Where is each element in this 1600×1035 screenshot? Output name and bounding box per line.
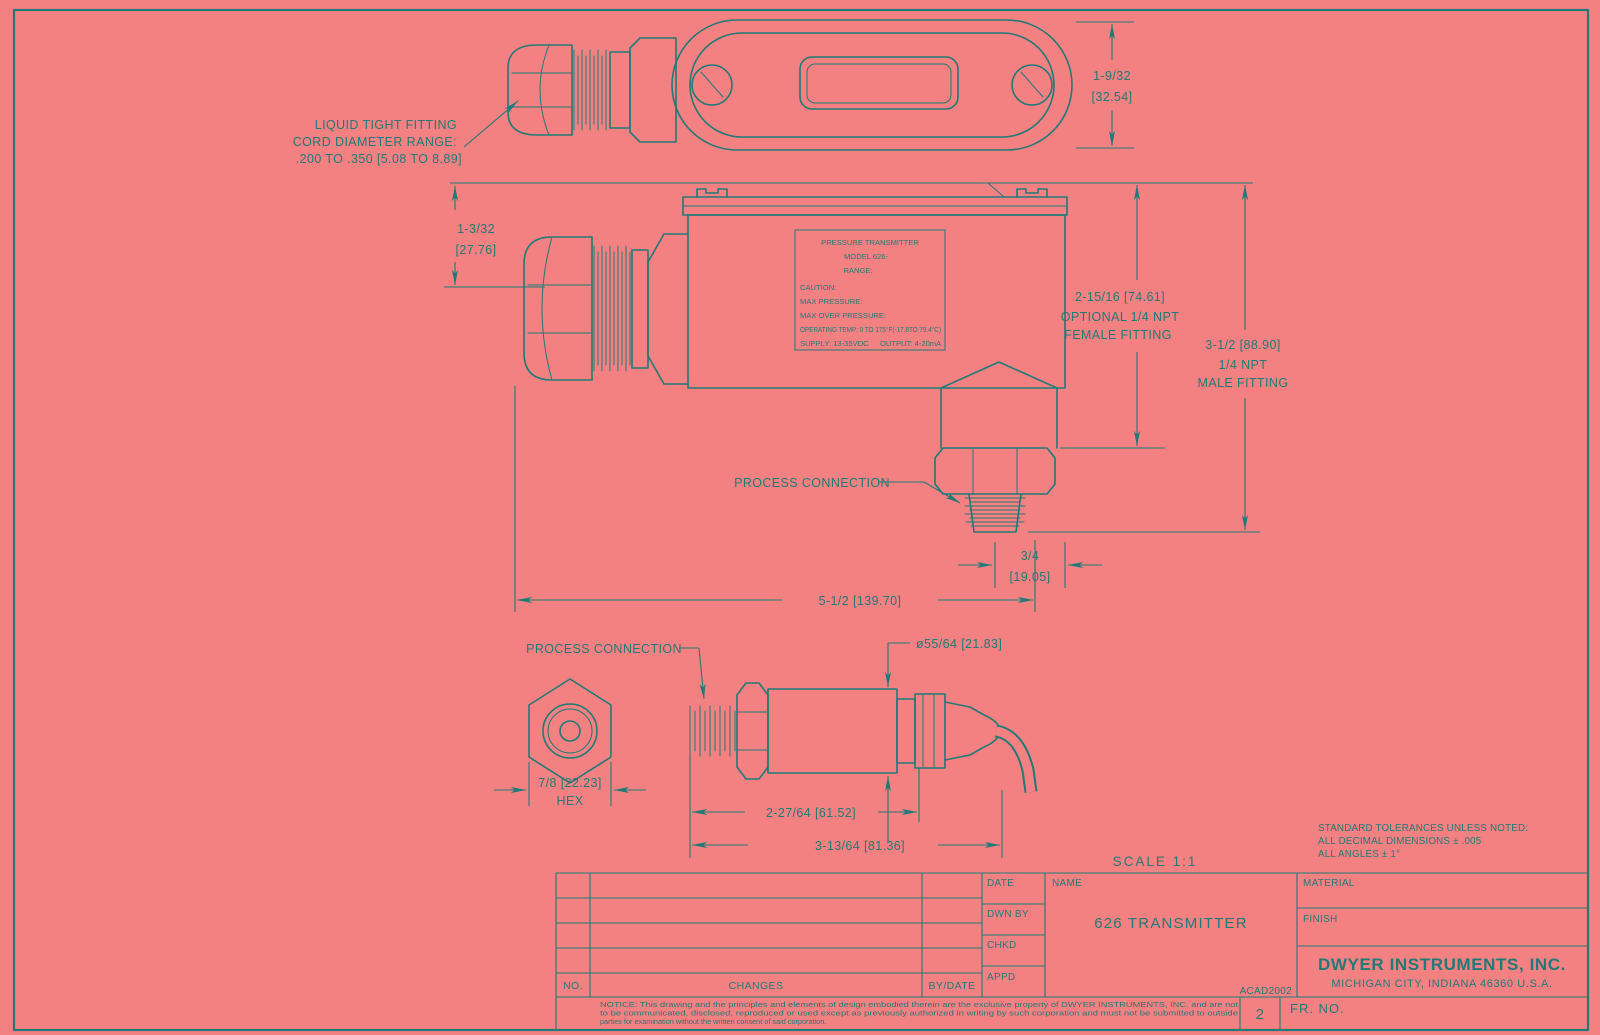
nameplate-line2: MODEL 626- [844,252,889,261]
company-name: DWYER INSTRUMENTS, INC. [1318,955,1566,974]
process-connection-side-text: PROCESS CONNECTION [734,476,890,490]
dim-grip-offset-text: 1-3/32 [457,222,495,236]
dim-male-text2: 1/4 NPT [1219,358,1268,372]
dim-cover-height-text: 1-9/32 [1093,69,1131,83]
rev-changes-header: CHANGES [729,980,784,992]
sign-row-chkd: CHKD [987,940,1017,951]
tolerance-line2: ALL DECIMAL DIMENSIONS ± .005 [1318,836,1482,847]
sign-row-date: DATE [987,878,1014,889]
dim-male-text3: MALE FITTING [1198,376,1289,390]
drawing-title: 626 TRANSMITTER [1094,915,1248,932]
dim-hex-label: HEX [557,794,584,808]
note-liquid-tight: LIQUID TIGHT FITTING CORD DIAMETER RANGE… [293,101,518,166]
end-view [529,679,611,783]
dim-conn-offset: 3/4 [19.05] [958,542,1102,588]
rev-by-date-header: BY/DATE [929,980,976,992]
dim-cover-height-mm: [32.54] [1091,90,1132,104]
nameplate-line7: OPERATING TEMP: 0 TO 175°F(-17.8TO 79.4°… [800,325,941,334]
dim-hex-flats: 7/8 [22.23] HEX [494,762,646,808]
scale-note: SCALE 1:1 [1113,854,1198,869]
finish-label: FINISH [1303,914,1338,925]
dim-female-text2: OPTIONAL 1/4 NPT [1061,310,1179,324]
dim-probe-len2-text: 3-13/64 [81.36] [815,839,905,853]
lid-screw-left [697,189,727,197]
rev-no-header: NO. [563,980,583,992]
dim-grip-offset-mm: [27.76] [455,243,496,257]
dim-overall-width-text: 5-1/2 [139.70] [819,594,902,608]
nameplate-line5: MAX PRESSURE: [800,297,862,306]
drawing-sheet: 1-9/32 [32.54] LIQUID TIGHT FITTING CORD… [0,0,1600,1035]
top-view [508,20,1072,150]
dim-grip-offset: 1-3/32 [27.76] [444,186,545,287]
dim-conn-offset-text: 3/4 [1021,549,1040,563]
probe-view [690,683,1031,792]
note-process-connection-side: PROCESS CONNECTION [734,476,960,503]
dim-female-text3: FEMALE FITTING [1064,328,1172,342]
dim-probe-dia-text: ø55/64 [21.83] [916,637,1002,651]
dim-conn-offset-mm: [19.05] [1009,570,1050,584]
sheet-border [14,10,1588,1030]
fr-no-label: FR. NO. [1290,1001,1345,1016]
nameplate: PRESSURE TRANSMITTER MODEL 626- RANGE: C… [795,230,945,350]
tolerance-line3: ALL ANGLES ± 1° [1318,849,1400,860]
liquid-tight-line3: .200 TO .350 [5.08 TO 8.89] [296,152,462,166]
nameplate-output: OUTPUT: 4-20mA [880,339,942,348]
cover-window [800,57,958,109]
dim-male-fitting: 3-1/2 [88.90] 1/4 NPT MALE FITTING [1028,185,1288,532]
sign-row-dwn-by: DWN BY [987,909,1029,920]
tolerance-line1: STANDARD TOLERANCES UNLESS NOTED: [1318,823,1528,834]
tolerance-block: STANDARD TOLERANCES UNLESS NOTED: ALL DE… [1318,823,1528,860]
dim-hex-text: 7/8 [22.23] [538,776,601,790]
name-label: NAME [1052,878,1082,889]
sheet-number: 2 [1256,1006,1265,1023]
nameplate-line4: CAUTION: [800,283,836,292]
title-block: NO. CHANGES BY/DATE DATE DWN BY CHKD APP… [556,873,1588,1030]
dim-male-text1: 3-1/2 [88.90] [1205,338,1280,352]
notice-line3: parties for examination without the writ… [600,1017,826,1026]
lid-screw-right [1017,189,1047,197]
nameplate-line6: MAX OVER PRESSURE: [800,311,886,320]
liquid-tight-line2: CORD DIAMETER RANGE: [293,135,457,149]
nameplate-supply: SUPPLY: 13-35VDC [800,339,869,348]
nameplate-line1: PRESSURE TRANSMITTER [821,238,919,247]
dim-probe-len1-text: 2-27/64 [61.52] [766,806,856,820]
dim-probe-len2: 3-13/64 [81.36] [692,790,1002,858]
nameplate-line3: RANGE: [843,266,872,275]
process-connection-bottom-text: PROCESS CONNECTION [526,642,682,656]
company-address: MICHIGAN CITY, INDIANA 46360 U.S.A. [1331,978,1552,990]
dim-female-fitting: 2-15/16 [74.61] OPTIONAL 1/4 NPT FEMALE … [1060,185,1179,448]
sign-row-appd: APPD [987,972,1015,983]
dim-overall-width: 5-1/2 [139.70] [515,386,1035,612]
notice-text: NOTICE: This drawing and the principles … [600,1000,1238,1026]
liquid-tight-line1: LIQUID TIGHT FITTING [315,118,457,132]
cad-ref: ACAD2002 [1240,986,1293,997]
dim-cover-height: 1-9/32 [32.54] [1076,22,1134,148]
probe-body [768,689,897,773]
dim-female-text1: 2-15/16 [74.61] [1075,290,1165,304]
material-label: MATERIAL [1303,878,1355,889]
